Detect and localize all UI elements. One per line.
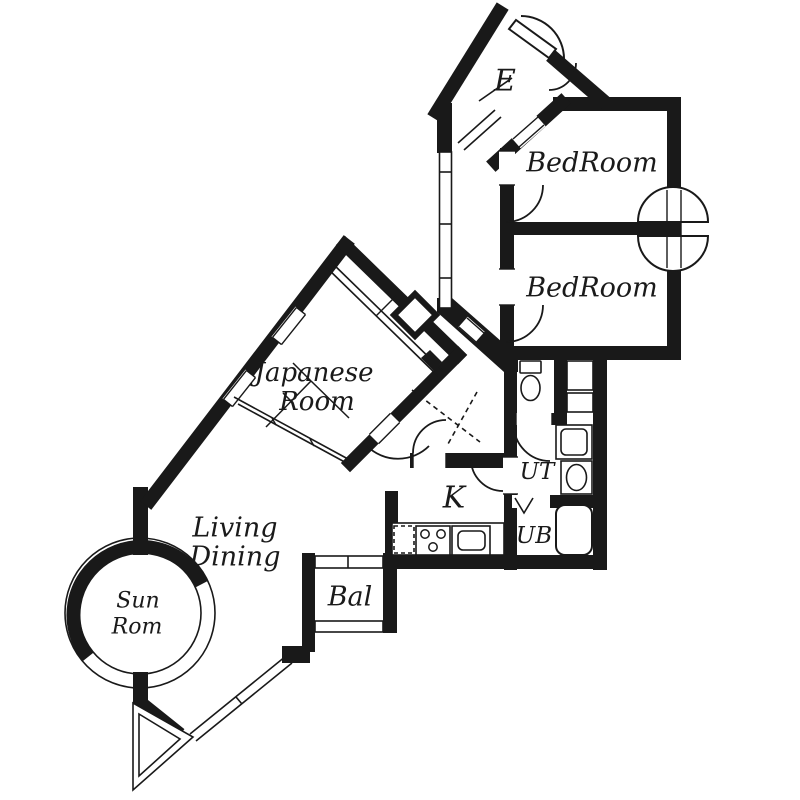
- floor-plan-svg: E BedRoom BedRoom Japanese Room Living D…: [0, 0, 800, 800]
- label-japanese-room-2: Room: [278, 387, 355, 417]
- kitchen-counter: [392, 523, 504, 555]
- stove-icon: [416, 526, 450, 555]
- label-bedroom-2: BedRoom: [525, 273, 658, 304]
- label-sun-room-1: Sun: [116, 589, 159, 614]
- kitchen-sink-icon: [452, 526, 490, 555]
- label-utility: UT: [520, 459, 556, 485]
- refrigerator-space: [394, 526, 414, 553]
- label-entrance: E: [493, 64, 516, 99]
- label-living-1: Living: [191, 513, 277, 544]
- label-living-2: Dining: [189, 542, 281, 573]
- bedroom1-door-gap: [499, 151, 515, 185]
- bedroom2-door-gap: [499, 269, 515, 305]
- label-unit-bath: UB: [516, 523, 552, 549]
- corridor-window: [440, 152, 452, 308]
- label-japanese-room-1: Japanese: [250, 358, 374, 388]
- balcony-rail: [315, 621, 383, 632]
- label-kitchen: K: [442, 481, 467, 516]
- label-bedroom-1: BedRoom: [525, 148, 658, 179]
- wash-basin-icon: [561, 461, 592, 494]
- balcony-sliding-door: [315, 556, 383, 568]
- washing-machine-icon: [556, 425, 592, 459]
- label-balcony: Bal: [327, 582, 373, 613]
- bathtub-icon: [556, 505, 592, 555]
- storage-shelves: [567, 361, 593, 412]
- floor-plan: E BedRoom BedRoom Japanese Room Living D…: [0, 0, 800, 800]
- label-sun-room-2: Rom: [111, 615, 163, 640]
- toilet-icon: [520, 361, 541, 401]
